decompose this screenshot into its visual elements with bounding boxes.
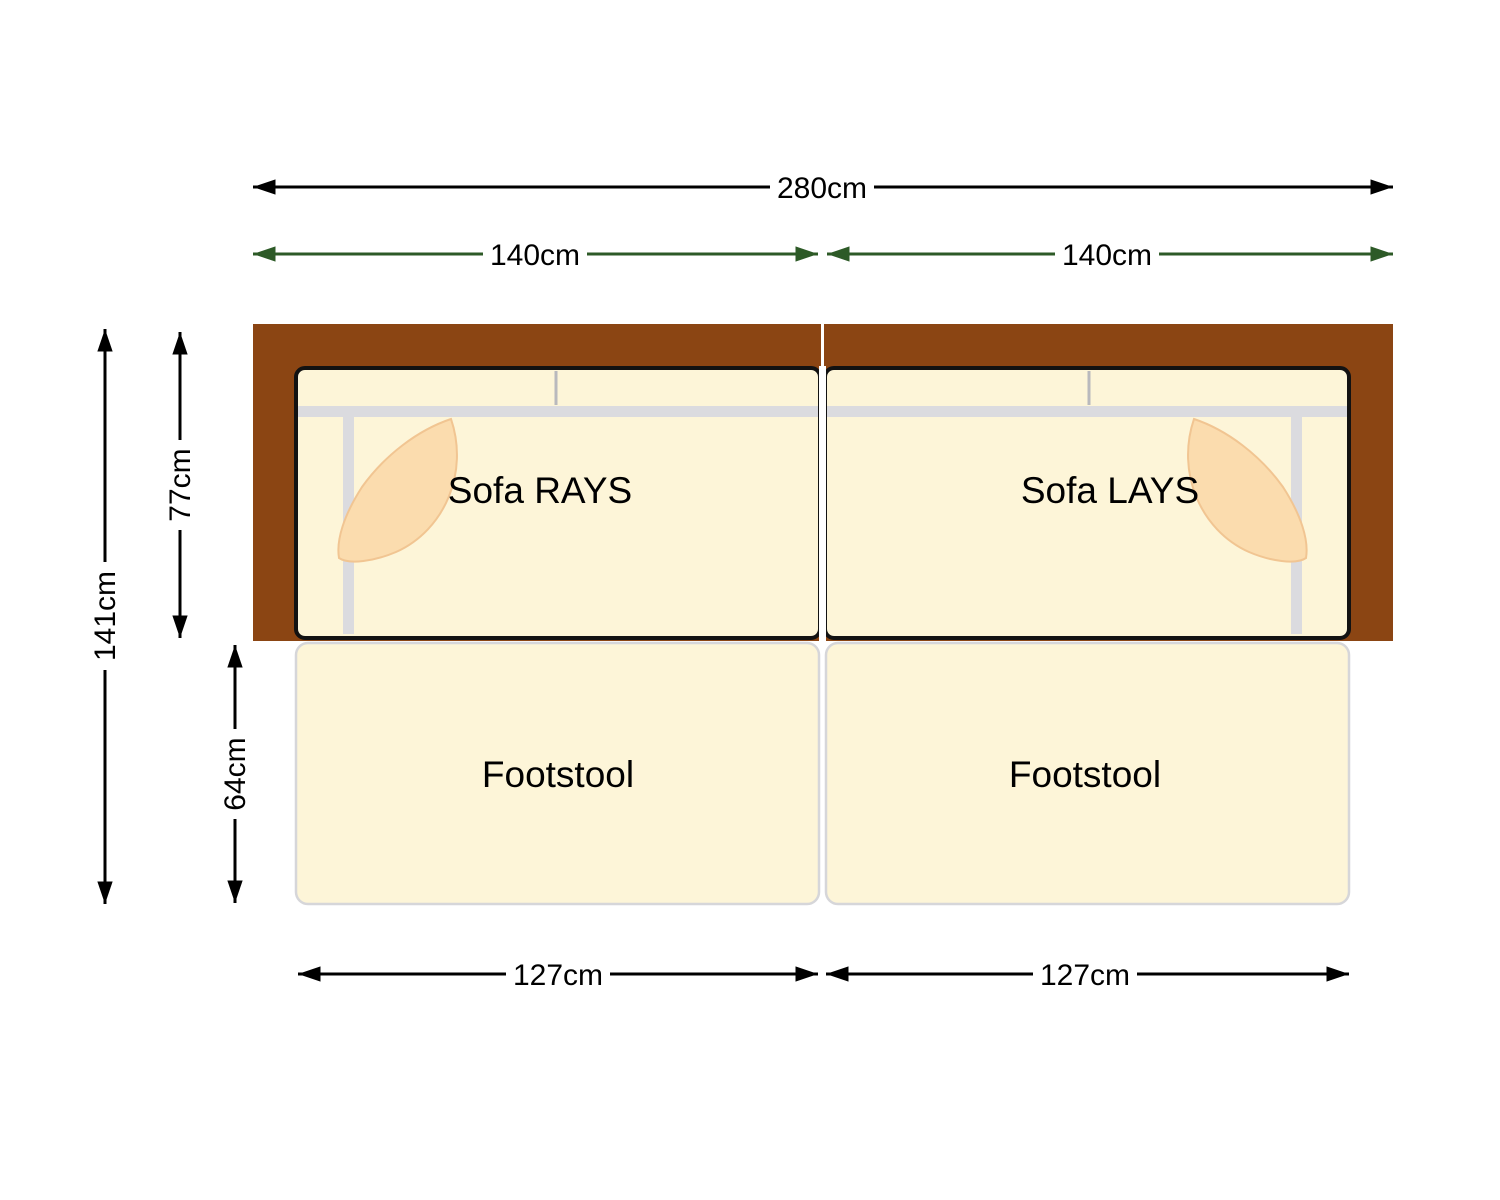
dimension-total-width: 280cm [253, 168, 1393, 206]
sofa-right-seat-seam [827, 406, 1347, 417]
dimension-sofa-left-width: 140cm [253, 235, 818, 273]
sofa-right-label: Sofa LAYS [1021, 470, 1199, 511]
dimension-sofa-left-width-label: 140cm [490, 239, 580, 272]
dimension-footstool-right-width: 127cm [826, 955, 1349, 993]
dimension-sofa-depth: 77cm [161, 332, 199, 638]
sofa-right: Sofa LAYS [825, 368, 1349, 638]
sofa-left: Sofa RAYS [296, 368, 820, 638]
sofa-plan-diagram: Sofa RAYS Sofa LAYS Footstool Footstool … [0, 0, 1500, 1200]
dimension-sofa-right-width: 140cm [827, 235, 1393, 273]
dimension-footstool-right-width-label: 127cm [1040, 959, 1130, 992]
sofa-left-label: Sofa RAYS [448, 470, 632, 511]
dimension-sofa-depth-label: 77cm [164, 448, 197, 521]
dimension-footstool-left-width: 127cm [298, 955, 818, 993]
dimension-total-depth: 141cm [86, 329, 124, 904]
dimension-sofa-right-width-label: 140cm [1062, 239, 1152, 272]
dimension-footstool-left-width-label: 127cm [513, 959, 603, 992]
sofa-divider-bottom [819, 366, 826, 642]
sofa-divider [819, 324, 826, 642]
footstool-right: Footstool [826, 643, 1349, 904]
sofa-plan-page: Sofa RAYS Sofa LAYS Footstool Footstool … [0, 0, 1500, 1200]
sofa-left-seat-seam [298, 406, 818, 417]
footstool-right-label: Footstool [1009, 754, 1161, 795]
footstool-left-label: Footstool [482, 754, 634, 795]
dimension-total-depth-label: 141cm [89, 571, 122, 661]
dimension-footstool-depth-label: 64cm [219, 737, 252, 810]
dimension-total-width-label: 280cm [777, 172, 867, 205]
sofa-divider-top [821, 324, 824, 368]
footstool-left: Footstool [296, 643, 819, 904]
dimension-footstool-depth: 64cm [216, 645, 254, 903]
